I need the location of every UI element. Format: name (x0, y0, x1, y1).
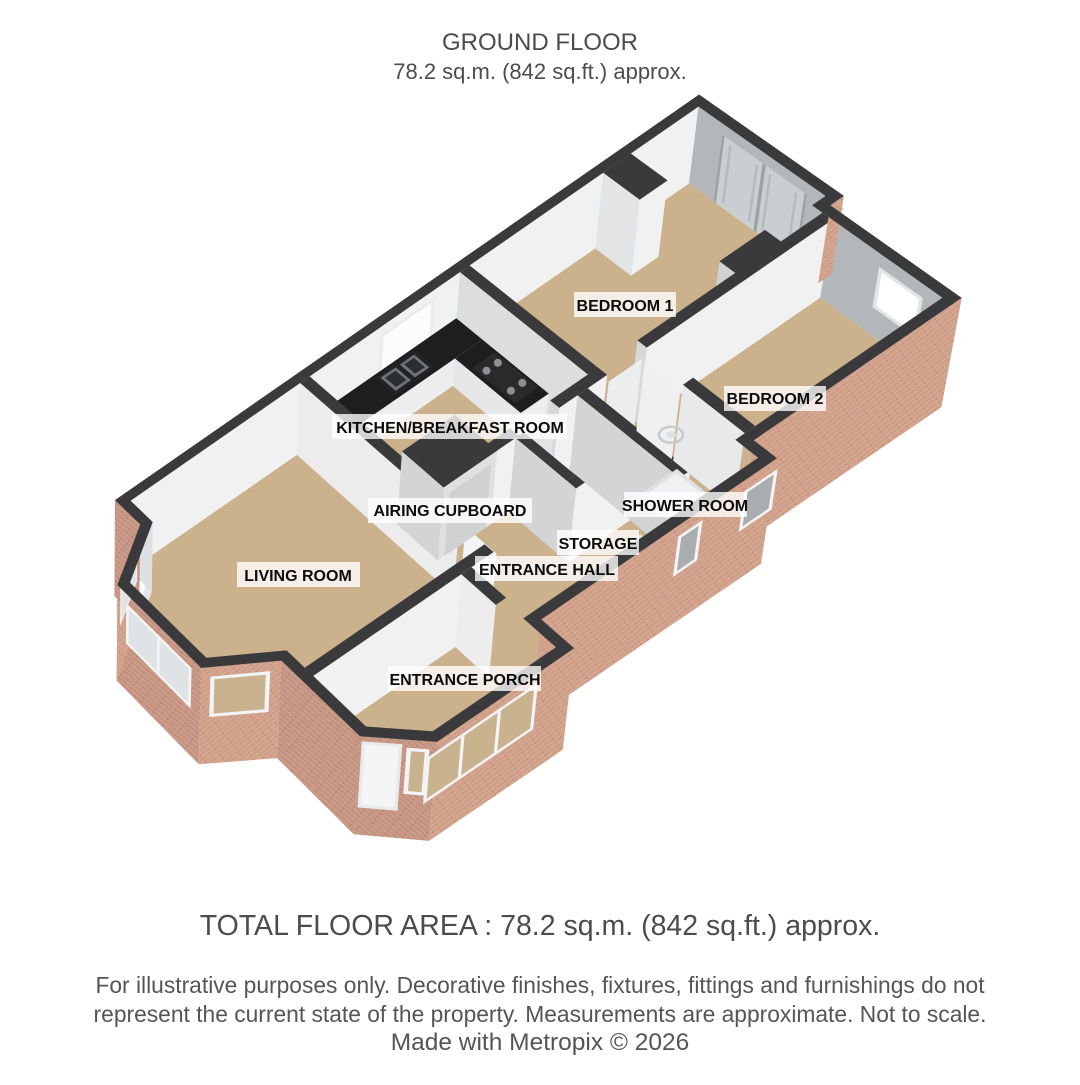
svg-text:LIVING ROOM: LIVING ROOM (244, 568, 352, 585)
svg-text:GROUND FLOOR: GROUND FLOOR (442, 29, 638, 56)
svg-text:KITCHEN/BREAKFAST ROOM: KITCHEN/BREAKFAST ROOM (336, 420, 564, 437)
svg-text:represent the current state of: represent the current state of the prope… (94, 1001, 987, 1027)
svg-text:ENTRANCE PORCH: ENTRANCE PORCH (389, 672, 540, 689)
svg-text:STORAGE: STORAGE (559, 536, 638, 553)
svg-text:BEDROOM 1: BEDROOM 1 (577, 298, 674, 315)
svg-text:AIRING CUPBOARD: AIRING CUPBOARD (374, 503, 527, 520)
svg-text:78.2 sq.m. (842 sq.ft.) approx: 78.2 sq.m. (842 sq.ft.) approx. (393, 59, 686, 84)
svg-text:For illustrative purposes only: For illustrative purposes only. Decorati… (95, 972, 985, 998)
svg-text:TOTAL FLOOR AREA : 78.2 sq.m.: TOTAL FLOOR AREA : 78.2 sq.m. (842 sq.ft… (200, 910, 881, 942)
svg-text:ENTRANCE HALL: ENTRANCE HALL (479, 562, 615, 579)
svg-text:Made with Metropix © 2026: Made with Metropix © 2026 (391, 1029, 690, 1056)
svg-text:BEDROOM 2: BEDROOM 2 (727, 391, 824, 408)
svg-text:SHOWER ROOM: SHOWER ROOM (622, 498, 748, 515)
